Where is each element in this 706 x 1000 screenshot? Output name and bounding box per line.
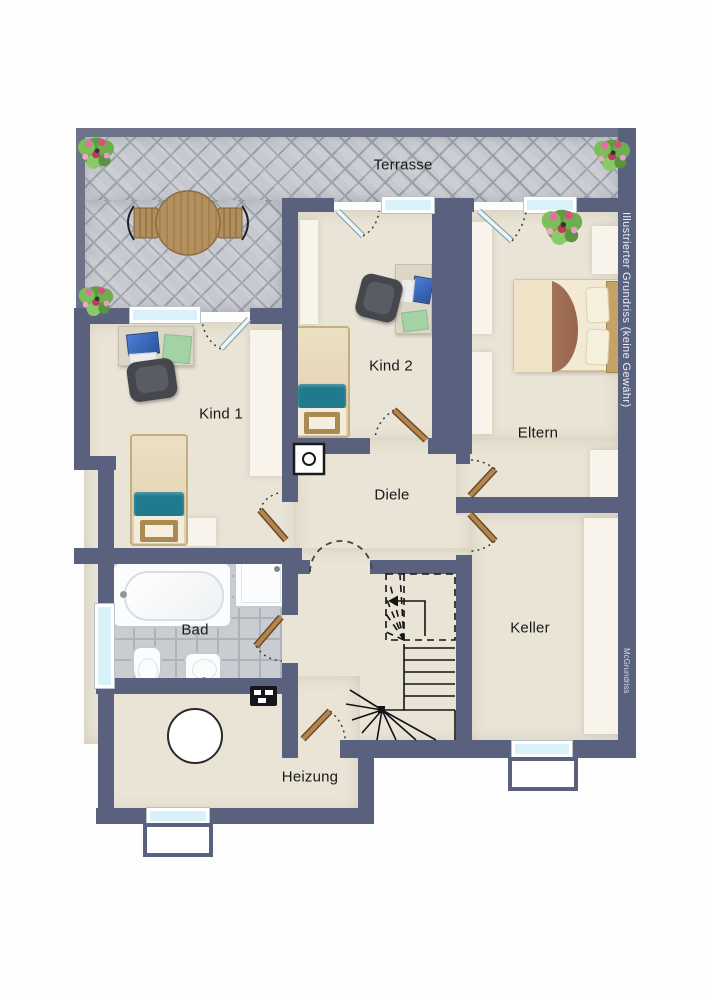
wall-left-lower (98, 686, 114, 824)
wall-north (282, 198, 334, 212)
wall-south-outer (340, 740, 636, 758)
wall-bad-south (96, 678, 284, 694)
watermark-brand: McGrundriss (622, 648, 631, 748)
lightwell-heizung (143, 823, 213, 857)
wall-eltern-south (456, 497, 620, 513)
eltern-bed (513, 279, 621, 371)
terrace-border-left (76, 128, 85, 314)
kind2-bed (294, 326, 350, 438)
room-label-kind2: Kind 2 (369, 358, 413, 375)
window-heizung (147, 808, 209, 824)
wall-north (576, 198, 620, 212)
window-kind1 (130, 307, 200, 323)
keller-shelf (584, 518, 618, 734)
wall-heizung-south (96, 808, 374, 824)
room-label-keller: Keller (510, 620, 550, 637)
wall-diele-north (294, 438, 370, 454)
bathtub (112, 562, 232, 628)
room-label-bad: Bad (181, 622, 208, 639)
kind2-wardrobe (300, 220, 318, 324)
heating-tank (167, 708, 223, 764)
wall-divider-kind2-eltern (432, 212, 472, 440)
eltern-pillow (585, 286, 610, 323)
window-eltern (524, 197, 576, 213)
wall-kind1-east (282, 440, 298, 502)
kind1-bed (130, 434, 188, 546)
eltern-blanket (514, 280, 578, 372)
window-bad (95, 604, 114, 688)
watermark-disclaimer: Illustrierter Grundriss (keine Gewähr) (620, 212, 632, 542)
eltern-pillow (585, 328, 610, 365)
room-label-eltern: Eltern (518, 425, 558, 442)
kind1-shelf (186, 518, 216, 546)
wall-diele-south (370, 560, 472, 574)
kind2-desk (395, 264, 432, 334)
eltern-wardrobe-upper (472, 222, 492, 334)
lightwell-keller (508, 757, 578, 791)
terrace-tiles-left (84, 200, 282, 312)
window-keller (512, 741, 572, 757)
room-label-heizung: Heizung (282, 769, 338, 786)
wall-kind1-south (74, 548, 302, 564)
wall-left-upper (74, 308, 90, 466)
eltern-shelf-bottom (590, 450, 618, 498)
wall-north (432, 198, 474, 212)
room-label-kind1: Kind 1 (199, 406, 243, 423)
room-label-terrasse: Terrasse (373, 157, 432, 174)
kind1-wardrobe (250, 330, 284, 476)
eltern-shelf-top (592, 226, 618, 274)
desk-pad-icon (401, 309, 429, 332)
wall-left-lower (98, 456, 114, 604)
wall-bad-east (282, 663, 298, 758)
window-kind2 (382, 197, 434, 213)
terrace-border-top (76, 128, 622, 137)
eltern-wardrobe-lower (472, 352, 492, 434)
room-label-diele: Diele (374, 487, 409, 504)
kind1-chair (125, 357, 178, 403)
floor-heizung (98, 676, 360, 812)
wall-divider-kind1-kind2 (282, 212, 298, 442)
wall-diele-east-stub (456, 440, 470, 464)
floor-plan: Terrasse Kind 1 Kind 2 Eltern Diele Bad … (0, 0, 706, 1000)
drain-icon (274, 566, 280, 572)
faucet-icon (120, 591, 127, 598)
wall-heizung-east (358, 758, 374, 812)
terrace-tiles-top (84, 136, 620, 202)
wall-keller-west (456, 555, 472, 742)
